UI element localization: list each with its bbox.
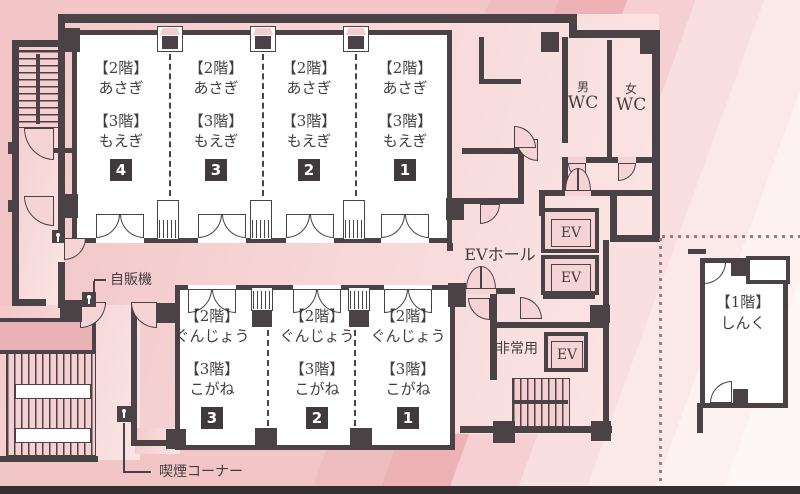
room-number-badge: 4 (110, 159, 132, 181)
wall (543, 190, 655, 196)
room-floor2-tag: 【2階】 (168, 58, 264, 78)
wall (131, 303, 137, 446)
room-floor3-name: こがね (164, 379, 260, 399)
room-floor3-tag: 【3階】 (73, 111, 169, 131)
room-floor3-name: もえぎ (357, 131, 453, 151)
wall (460, 426, 612, 433)
room-floor3-name: こがね (269, 379, 365, 399)
elevator-shaft: EV (541, 208, 599, 253)
room-number-badge: 3 (201, 407, 223, 429)
pillar (58, 28, 80, 52)
wall (58, 14, 577, 23)
wc-label: WC (560, 94, 606, 113)
wall (12, 40, 19, 306)
leader-line (94, 279, 106, 281)
annex-floor-tag: 【1階】 (694, 292, 792, 313)
wall (490, 293, 497, 380)
partition-housing (343, 26, 369, 52)
room-floor3-name: もえぎ (261, 131, 357, 151)
room-floor2-tag: 【2階】 (73, 58, 169, 78)
leader-line (125, 471, 151, 473)
wall (697, 403, 703, 433)
bottom-room-3-label: 【2階】 ぐんじょう 【3階】 こがね 3 (164, 306, 260, 429)
partition-storage (343, 200, 365, 240)
top-room-1-label: 【2階】 あさぎ 【3階】 もえぎ 1 (357, 58, 453, 181)
pillar (8, 142, 18, 154)
room-floor2-tag: 【2階】 (261, 58, 357, 78)
room-floor2-name: あさぎ (73, 78, 169, 98)
door-gap (381, 238, 429, 243)
partition-storage (250, 200, 272, 240)
wall (479, 37, 484, 83)
room-floor2-name: あさぎ (261, 78, 357, 98)
top-room-2-label: 【2階】 あさぎ 【3階】 もえぎ 2 (261, 58, 357, 181)
floor-map: EV EV EV 【2階】 あさぎ 【3階】 もえぎ 4 【2階】 あさぎ 【3… (0, 0, 800, 494)
pillar (448, 283, 466, 307)
room-number-badge: 1 (394, 159, 416, 181)
wall (462, 148, 524, 154)
annex-alcove (746, 256, 790, 284)
pillar (731, 262, 746, 276)
wall (652, 46, 660, 242)
room-number-badge: 3 (205, 159, 227, 181)
room-floor3-tag: 【3階】 (357, 111, 453, 131)
wall (688, 249, 706, 254)
womens-wc-label: 女 WC (608, 82, 654, 115)
room-floor3-tag: 【3階】 (261, 111, 357, 131)
room-floor2-tag: 【2階】 (164, 306, 260, 326)
wall (479, 79, 521, 84)
womens-label: 女 (608, 82, 654, 96)
pillar (591, 421, 611, 441)
room-floor3-name: もえぎ (73, 131, 169, 151)
room-floor2-name: ぐんじょう (164, 326, 260, 346)
leader-line (93, 281, 95, 293)
pillar (166, 429, 186, 449)
room-floor2-tag: 【2階】 (269, 306, 365, 326)
fire-hydrant-icon (52, 230, 64, 243)
emergency-ev-label: 非常用 (490, 338, 544, 358)
wall (518, 148, 524, 204)
room-floor3-tag: 【3階】 (168, 111, 264, 131)
partition-storage (157, 200, 179, 240)
room-floor2-tag: 【2階】 (360, 306, 456, 326)
staircase-rail (36, 54, 40, 124)
wall (447, 243, 453, 251)
pillar (541, 32, 559, 52)
wall (610, 235, 657, 242)
room-number-badge: 1 (397, 407, 419, 429)
wall (12, 40, 64, 47)
pillar (8, 200, 18, 212)
room-floor3-name: もえぎ (168, 131, 264, 151)
pillar (446, 198, 464, 220)
door-gap (198, 238, 246, 243)
door-gap (96, 238, 144, 243)
wall (603, 240, 609, 432)
top-room-3-label: 【2階】 あさぎ 【3階】 もえぎ 3 (168, 58, 264, 181)
elevator-label: EV (551, 341, 583, 369)
wall (569, 30, 649, 38)
bottom-room-2-label: 【2階】 ぐんじょう 【3階】 こがね 2 (269, 306, 365, 429)
leader-line (123, 423, 125, 473)
room-floor3-tag: 【3階】 (164, 359, 260, 379)
vending-machine-label: 自販機 (100, 269, 162, 289)
smoking-corner-label: 喫煙コーナー (148, 461, 254, 481)
stair-landing (15, 384, 91, 399)
pillar (60, 300, 82, 322)
door-gap (286, 238, 334, 243)
pillar (350, 428, 372, 448)
wc-label: WC (608, 96, 654, 115)
annex-room-label: 【1階】 しんく (694, 292, 792, 334)
wall (12, 299, 46, 306)
pillar (60, 194, 78, 218)
wing-boundary-dotted-line (662, 235, 800, 238)
room-floor2-name: ぐんじょう (360, 326, 456, 346)
stair-landing (15, 428, 91, 443)
annex-room-name: しんく (694, 313, 792, 334)
elevator-label: EV (551, 264, 591, 292)
ev-hall-label: EVホール (456, 241, 544, 265)
elevator-shaft: EV (541, 255, 599, 295)
room-floor3-tag: 【3階】 (360, 359, 456, 379)
vending-machine-icon (82, 292, 96, 307)
mens-label: 男 (560, 80, 606, 94)
room-floor3-tag: 【3階】 (269, 359, 365, 379)
mens-wc-label: 男 WC (560, 80, 606, 113)
pillar (255, 428, 277, 448)
room-number-badge: 2 (306, 407, 328, 429)
elevator-label: EV (551, 219, 591, 247)
page-bottom-bar (0, 486, 800, 494)
pillar (733, 389, 748, 403)
room-floor2-name: あさぎ (357, 78, 453, 98)
bottom-room-1-label: 【2階】 ぐんじょう 【3階】 こがね 1 (360, 306, 456, 429)
room-number-badge: 2 (298, 159, 320, 181)
wing-boundary-dotted-line (659, 238, 662, 494)
room-floor3-name: こがね (360, 379, 456, 399)
pillar (590, 305, 610, 323)
pillar (493, 421, 515, 443)
room-floor2-tag: 【2階】 (357, 58, 453, 78)
stair-landing-divider (514, 400, 568, 404)
emergency-elevator-shaft: EV (544, 332, 588, 372)
wall (0, 456, 98, 462)
room-floor2-name: あさぎ (168, 78, 264, 98)
room-floor2-name: ぐんじょう (269, 326, 365, 346)
partition-housing (250, 26, 276, 52)
smoking-area-icon (117, 406, 131, 422)
partition-housing (157, 26, 183, 52)
top-room-4-label: 【2階】 あさぎ 【3階】 もえぎ 4 (73, 58, 169, 181)
